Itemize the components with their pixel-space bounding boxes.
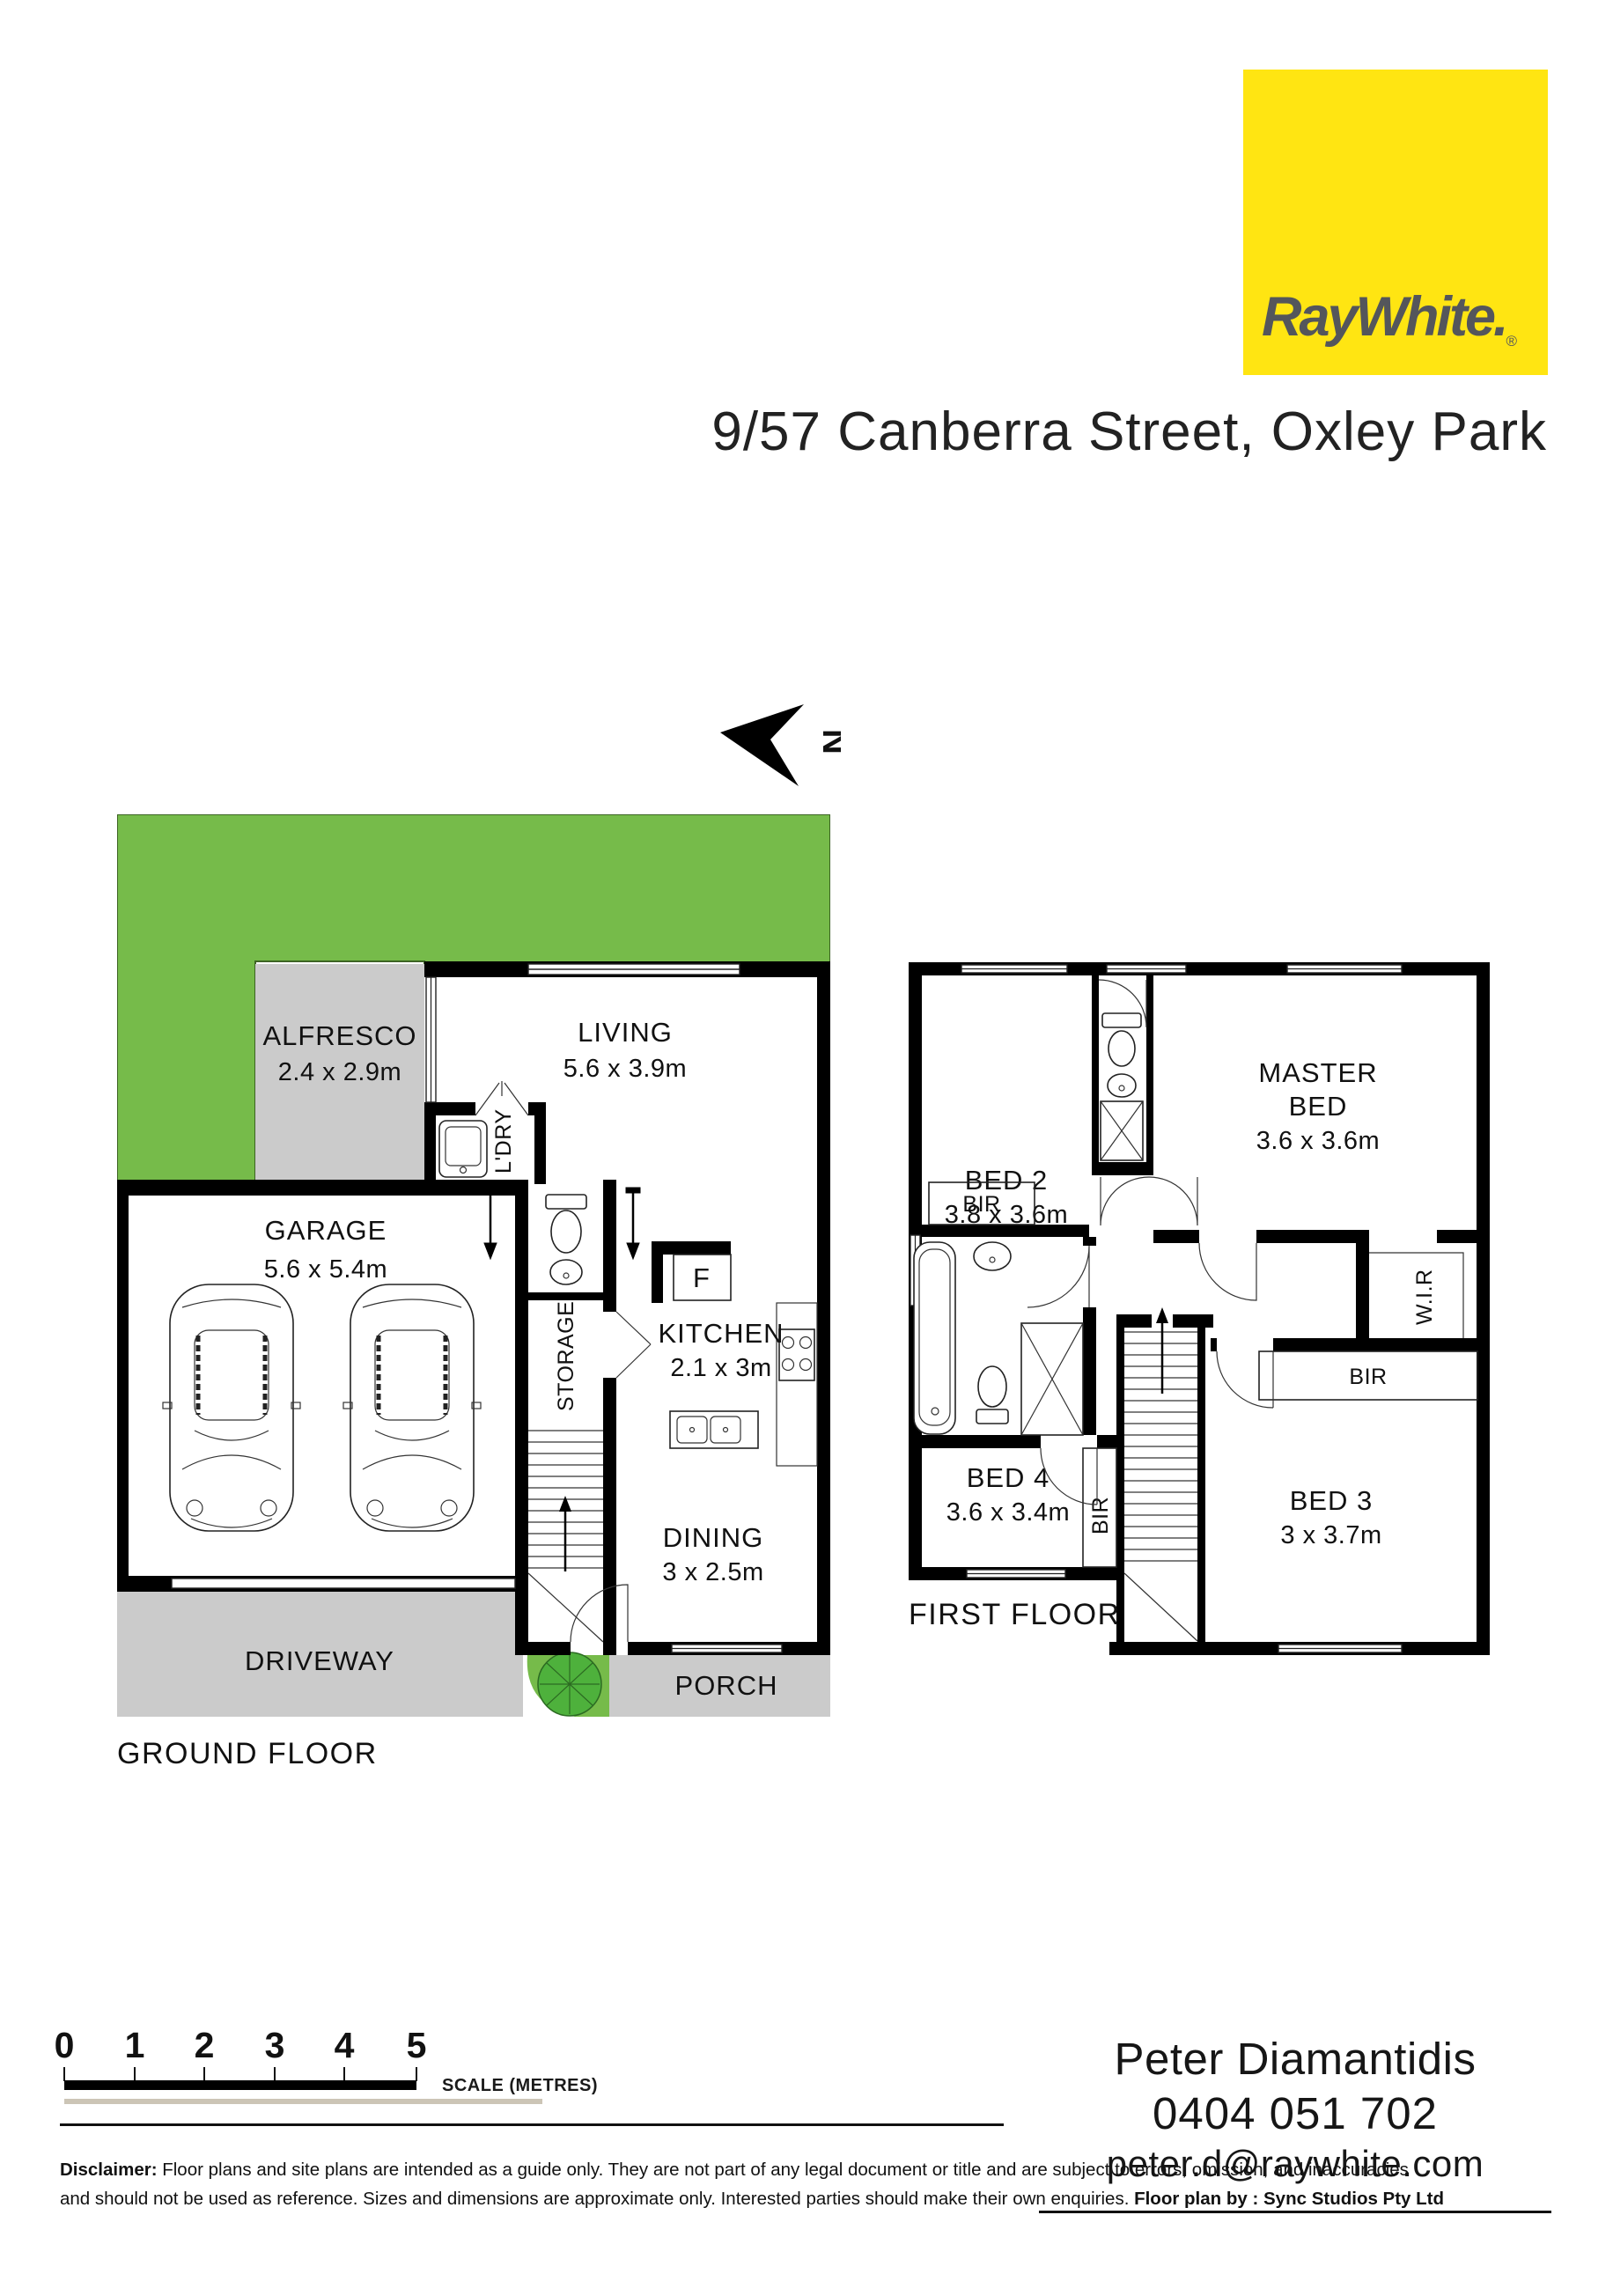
tree-icon: [538, 1652, 601, 1716]
bed2-label: BED 2: [965, 1165, 1049, 1196]
raywhite-logo-text: RayWhite.®: [1243, 285, 1536, 350]
kitchen-sink-icon: [670, 1411, 758, 1448]
driveway-area: DRIVEWAY: [117, 1592, 523, 1717]
garage-room: GARAGE 5.6 x 5.4m: [163, 1215, 481, 1531]
disclaimer-line1: Disclaimer: Floor plans and site plans a…: [60, 2155, 1363, 2184]
laundry-room: L'DRY: [439, 1081, 528, 1177]
bed3-label: BED 3: [1290, 1485, 1374, 1516]
registered-mark-icon: ®: [1506, 333, 1518, 350]
master-dims: 3.6 x 3.6m: [1256, 1127, 1380, 1155]
bed3-dims: 3 x 3.7m: [1280, 1521, 1381, 1549]
north-arrow-dart: [720, 704, 804, 786]
bed2-room: BED 2 3.8 x 3.6m BIR: [929, 1165, 1068, 1229]
page-title: 9/57 Canberra Street, Oxley Park: [314, 401, 1547, 463]
north-label: N: [815, 729, 841, 754]
bed2-bir-label: BIR: [962, 1192, 1000, 1217]
toilet-icon: [551, 1211, 581, 1253]
entry-door: [571, 1585, 628, 1642]
ensuite-room: [1099, 980, 1146, 1160]
alfresco-room: ALFRESCO 2.4 x 2.9m: [255, 964, 424, 1184]
stairs-up-arrow: [1156, 1307, 1168, 1323]
garage-label: GARAGE: [265, 1215, 387, 1246]
first-floor-plan: BED 2 3.8 x 3.6m BIR MASTER BED 3.6 x 3.…: [909, 962, 1490, 1655]
living-label: LIVING: [578, 1017, 673, 1048]
bathroom-toilet-icon: [976, 1366, 1008, 1424]
scale-tick-3: 3: [261, 2025, 288, 2066]
bathroom-shower-icon: [1021, 1323, 1083, 1435]
porch-label: PORCH: [675, 1670, 778, 1701]
bed3-room: BIR BED 3 3 x 3.7m: [1217, 1351, 1477, 1549]
bathroom-basin-icon: [974, 1242, 1011, 1270]
master-label-1: MASTER: [1258, 1057, 1377, 1088]
garage-dims: 5.6 x 5.4m: [264, 1255, 387, 1284]
kitchen-room: F KITCHEN 2.1 x 3m: [658, 1255, 817, 1466]
ground-floor-plan: ALFRESCO 2.4 x 2.9m DRIVEWAY PORCH: [117, 814, 830, 1770]
scale-tick-4: 4: [331, 2025, 357, 2066]
stairs-up-arrow: [559, 1496, 571, 1512]
disclaimer: Disclaimer: Floor plans and site plans a…: [60, 2155, 1363, 2213]
footer-divider: [60, 2123, 1004, 2126]
ensuite-shower-icon: [1101, 1101, 1143, 1160]
bathroom-door: [1027, 1246, 1089, 1307]
dining-room: DINING 3 x 2.5m: [571, 1522, 764, 1642]
bathtub-icon: [914, 1242, 955, 1434]
master-bed-room: MASTER BED 3.6 x 3.6m: [1199, 1057, 1380, 1300]
bathroom-room: [914, 1242, 1089, 1435]
driveway-label: DRIVEWAY: [245, 1645, 394, 1676]
bed4-room: BED 4 3.6 x 3.4m BIR: [946, 1448, 1116, 1567]
stairs-first: [1124, 1307, 1197, 1641]
stairs-ground: [528, 1431, 603, 1642]
first-floor-label: FIRST FLOOR: [909, 1598, 1121, 1631]
ground-floor-label: GROUND FLOOR: [117, 1737, 378, 1770]
bed4-bir-label: BIR: [1088, 1497, 1113, 1534]
agent-phone: 0404 051 702: [1039, 2086, 1551, 2141]
first-floor-walls: [909, 962, 1490, 1655]
scale-tick-5: 5: [403, 2025, 430, 2066]
kitchen-dims: 2.1 x 3m: [670, 1354, 771, 1382]
wir-label: W.I.R: [1412, 1269, 1437, 1325]
garage-door: [172, 1578, 515, 1588]
car-icon: [163, 1284, 300, 1531]
scale-tick-0: 0: [51, 2025, 77, 2066]
master-door: [1199, 1243, 1256, 1300]
disclaimer-line2: and should not be used as reference. Siz…: [60, 2184, 1363, 2213]
fridge-label: F: [693, 1262, 711, 1293]
ensuite-toilet-icon: [1108, 1031, 1135, 1066]
living-dims: 5.6 x 3.9m: [563, 1055, 687, 1083]
dining-label: DINING: [663, 1522, 764, 1553]
raywhite-logo: RayWhite.®: [1243, 70, 1548, 375]
living-room: LIVING 5.6 x 3.9m: [563, 1017, 687, 1083]
alfresco-label: ALFRESCO: [262, 1020, 416, 1051]
kitchen-label: KITCHEN: [658, 1318, 784, 1349]
cooktop-icon: [779, 1329, 814, 1380]
storage-room: STORAGE: [554, 1301, 651, 1411]
bed4-dims: 3.6 x 3.4m: [946, 1498, 1070, 1527]
agent-name: Peter Diamantidis: [1039, 2032, 1551, 2086]
dining-dims: 3 x 2.5m: [662, 1558, 763, 1586]
basin-icon: [550, 1260, 582, 1284]
wir-room: W.I.R: [1369, 1253, 1463, 1338]
porch-area: PORCH: [609, 1655, 830, 1717]
scale-tick-1: 1: [122, 2025, 148, 2066]
alfresco-dims: 2.4 x 2.9m: [278, 1058, 401, 1086]
hall-double-doors: [1101, 1177, 1197, 1225]
wc-room: [546, 1195, 586, 1284]
laundry-label: L'DRY: [491, 1108, 516, 1174]
master-label-2: BED: [1289, 1091, 1348, 1122]
bed3-bir-label: BIR: [1349, 1365, 1387, 1389]
floorplan-page: RayWhite.® 9/57 Canberra Street, Oxley P…: [0, 0, 1613, 2296]
bed4-label: BED 4: [967, 1462, 1050, 1493]
storage-door: [616, 1312, 651, 1378]
storage-label: STORAGE: [554, 1301, 578, 1411]
scale-tick-2: 2: [191, 2025, 217, 2066]
scale-units-label: SCALE (METRES): [442, 2076, 598, 2096]
north-arrow: N: [709, 695, 841, 801]
